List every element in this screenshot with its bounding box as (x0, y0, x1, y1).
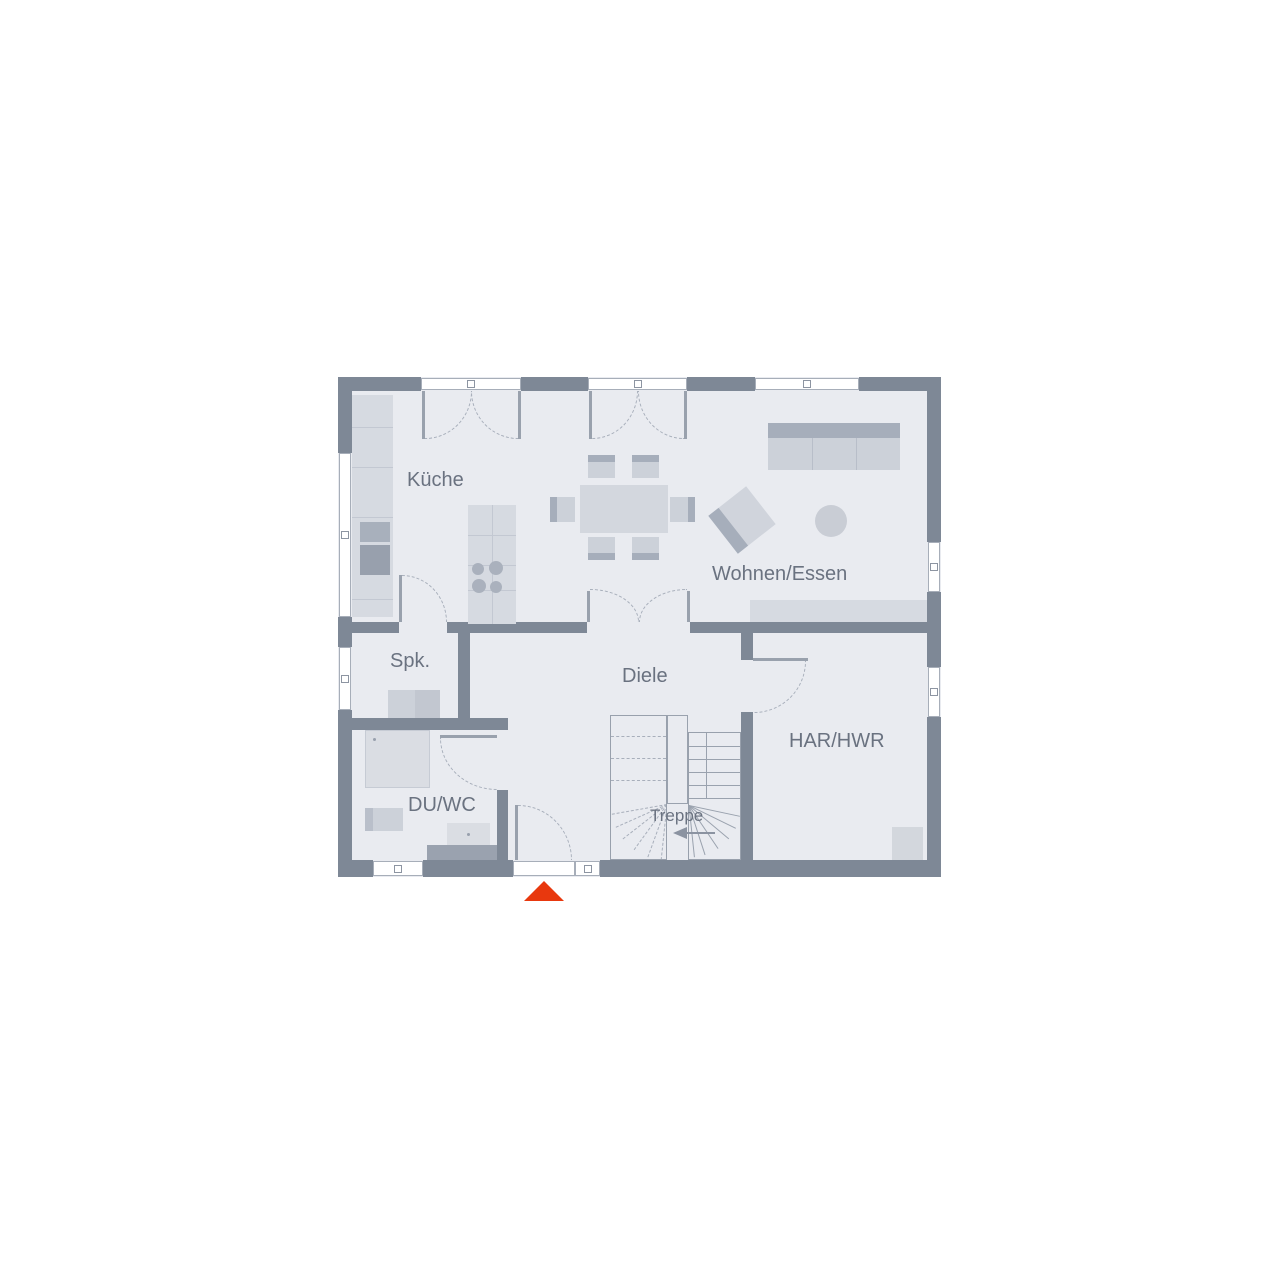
window-handle-icon (394, 865, 402, 873)
window-handle-icon (467, 380, 475, 388)
stair-tread (611, 736, 666, 737)
dining-chair (588, 455, 615, 478)
dining-table (580, 485, 668, 533)
stair-flight-lower (688, 732, 741, 860)
sink-appliance (360, 522, 390, 542)
wall-wohnen-diele-har (690, 622, 927, 633)
oven-appliance (360, 545, 390, 575)
door-swing-arc (639, 589, 687, 622)
room-label-kueche: Küche (407, 469, 464, 492)
outer-wall-bottom-segment (338, 860, 373, 877)
wall-duwc-top (352, 718, 508, 730)
dining-chair (670, 497, 695, 522)
cooktop-burner-icon (489, 561, 503, 575)
dining-chair (588, 537, 615, 560)
stair-tread (689, 772, 740, 773)
chair-back (688, 497, 695, 522)
window-handle-icon (584, 865, 592, 873)
stair-direction-arrow-icon (673, 827, 687, 839)
window-wohnen-right (928, 542, 940, 592)
kitchen-island (468, 505, 516, 624)
door-leaf (684, 391, 687, 439)
stair-tread (689, 759, 740, 760)
room-label-wohnen-essen: Wohnen/Essen (712, 563, 847, 586)
door-leaf (687, 591, 690, 622)
toilet (365, 808, 403, 831)
window-french-door-essen (588, 378, 687, 390)
stair-tread (689, 746, 740, 747)
cooktop-burner-icon (490, 581, 502, 593)
sofa-cushion-divider (812, 438, 813, 470)
door-swing-arc (754, 661, 806, 713)
entrance-marker-icon (524, 881, 564, 901)
counter-divider (352, 427, 393, 428)
chair-back (588, 553, 615, 560)
basin-drain-icon (467, 833, 470, 836)
armchair (708, 486, 775, 553)
outer-wall-right-segment (927, 377, 941, 542)
wall-kueche-spk (352, 622, 399, 633)
floor-plan-page: Küche Wohnen/Essen Spk. Diele DU/WC Trep… (0, 0, 1280, 1280)
entry-door-sill (513, 861, 575, 876)
door-swing-arc (590, 589, 639, 622)
window-french-door-kueche (421, 378, 521, 390)
door-swing-arc (425, 391, 472, 439)
island-divider (468, 535, 516, 536)
kitchen-counter (352, 395, 393, 617)
stair-flight-upper (610, 715, 667, 860)
door-leaf (518, 391, 521, 439)
window-handle-icon (803, 380, 811, 388)
door-swing-arc (440, 738, 497, 790)
chair-back (588, 455, 615, 462)
room-label-treppe: Treppe (650, 806, 703, 826)
stair-walkline (706, 733, 707, 799)
stair-well (667, 715, 688, 804)
floor-plan: Küche Wohnen/Essen Spk. Diele DU/WC Trep… (338, 377, 941, 877)
stair-tread (689, 785, 740, 786)
pantry-shelf (415, 690, 440, 718)
chair-back (550, 497, 557, 522)
room-label-har-hwr: HAR/HWR (789, 730, 885, 753)
outer-wall-left-segment (338, 710, 352, 877)
outer-wall-top-segment (521, 377, 588, 391)
entry-sidelight (575, 861, 600, 876)
sofa-back (768, 423, 900, 438)
chair-back (632, 455, 659, 462)
washbasin (447, 823, 490, 845)
wall-har-left-lower (741, 712, 753, 860)
dining-chair (550, 497, 575, 522)
shower-drain-icon (373, 738, 376, 741)
coffee-table (815, 505, 847, 537)
outer-wall-bottom-segment (600, 860, 941, 877)
window-kueche-left (339, 453, 351, 617)
counter-divider (352, 517, 393, 518)
sofa-cushion-divider (856, 438, 857, 470)
room-label-du-wc: DU/WC (408, 794, 476, 817)
window-handle-icon (930, 688, 938, 696)
counter-divider (352, 467, 393, 468)
outer-wall-right-segment (927, 592, 941, 667)
window-handle-icon (341, 531, 349, 539)
counter-divider (352, 599, 393, 600)
outer-wall-bottom-segment (423, 860, 513, 877)
window-handle-icon (341, 675, 349, 683)
window-spk-left (339, 647, 351, 710)
window-duwc-bottom (373, 861, 423, 876)
outer-wall-left-segment (338, 617, 352, 647)
vanity-counter (427, 845, 497, 860)
stair-tread (611, 758, 666, 759)
chair-back (632, 553, 659, 560)
outer-wall-right-segment (927, 717, 941, 877)
door-swing-arc (518, 805, 572, 860)
stair-arrow-tail (686, 832, 715, 834)
stair-tread (611, 780, 666, 781)
window-wohnen-top (755, 378, 859, 390)
window-handle-icon (634, 380, 642, 388)
window-handle-icon (930, 563, 938, 571)
wall-duwc-right (497, 790, 508, 860)
cooktop-burner-icon (472, 579, 486, 593)
sideboard (750, 600, 927, 622)
outer-wall-top-segment (687, 377, 755, 391)
dining-chair (632, 455, 659, 478)
outer-wall-left-segment (338, 377, 352, 453)
wall-spk-right (458, 633, 470, 718)
sofa (768, 423, 900, 470)
door-swing-arc (592, 391, 638, 439)
door-swing-arc (638, 391, 684, 439)
door-swing-arc (402, 575, 447, 622)
pantry-shelf (388, 690, 415, 718)
stair-tread (689, 798, 740, 799)
door-swing-arc (471, 391, 518, 439)
room-label-spk: Spk. (390, 650, 430, 673)
shower (365, 730, 430, 788)
window-har-right (928, 667, 940, 717)
room-label-diele: Diele (622, 665, 668, 688)
dining-chair (632, 537, 659, 560)
cooktop-burner-icon (472, 563, 484, 575)
toilet-tank (365, 808, 373, 831)
utility-appliance (892, 827, 923, 860)
wall-har-left-upper (741, 633, 753, 660)
